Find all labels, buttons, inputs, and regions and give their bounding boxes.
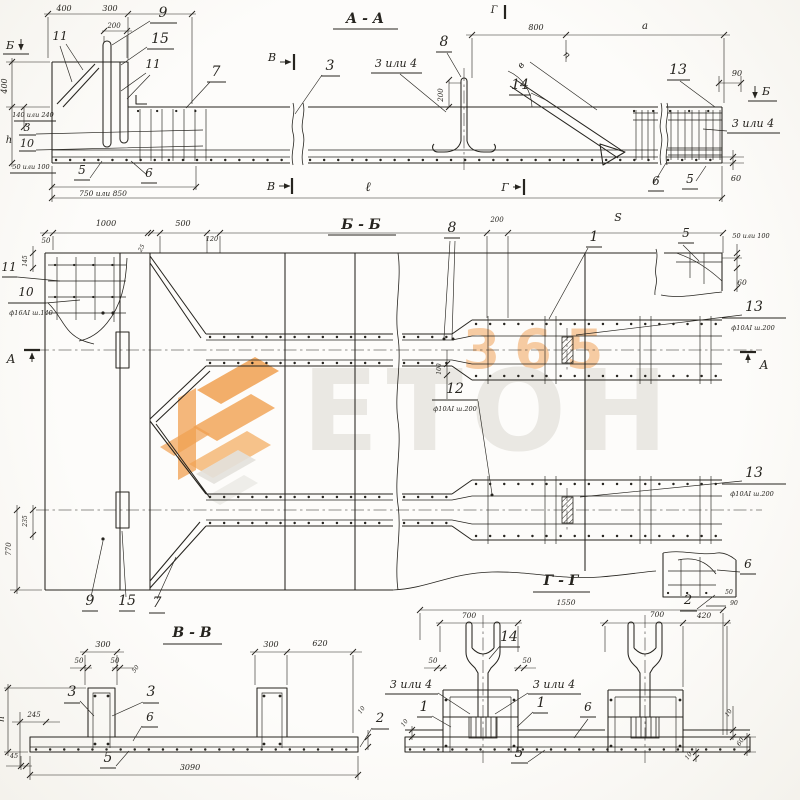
aa-callout-5b: 5 bbox=[686, 172, 694, 186]
gg-callout-1-left: 1 bbox=[420, 699, 429, 715]
aa-dim-a: а bbox=[642, 21, 648, 32]
gg-callout-3or4-left: 3 или 4 bbox=[390, 678, 432, 691]
aa-dim-140-240: 140 или 240 bbox=[12, 111, 53, 119]
gg-dim-700-left: 700 bbox=[462, 611, 477, 620]
gg-dim-10-left: 10 bbox=[400, 718, 410, 728]
section-vv-geometry bbox=[4, 644, 389, 780]
aa-dim-300-top: 300 bbox=[102, 4, 117, 13]
bb-dim-235: 235 bbox=[22, 515, 29, 528]
vv-dim-45: 45 bbox=[9, 752, 18, 760]
bb-dim-200: 200 bbox=[489, 216, 504, 224]
vv-dim-h: h bbox=[0, 716, 7, 722]
aa-dim-800: 800 bbox=[528, 23, 543, 32]
vv-dim-50-rot: 50 bbox=[131, 664, 141, 674]
bb-callout-13-bot: 13 bbox=[745, 465, 763, 481]
bb-dim-50-corner: 50 bbox=[725, 589, 733, 596]
bb-spec-13-top: ф10АI ш.200 bbox=[731, 324, 775, 332]
bb-dim-50-100: 50 или 100 bbox=[732, 232, 769, 240]
aa-callout-11b: 11 bbox=[145, 57, 160, 71]
bb-callout-7: 7 bbox=[153, 595, 162, 611]
bb-mark-a-right: А bbox=[758, 358, 768, 372]
section-bb-geometry bbox=[2, 230, 786, 750]
gg-dim-50-right: 50 bbox=[523, 657, 532, 665]
gg-callout-3or4-right: 3 или 4 bbox=[533, 678, 575, 691]
bb-mark-a-left: А bbox=[5, 352, 15, 366]
bb-dim-1000: 1000 bbox=[96, 219, 116, 228]
gg-title: Г - Г bbox=[543, 573, 580, 589]
bb-callout-11: 11 bbox=[1, 260, 16, 274]
vv-dim-300-right: 300 bbox=[263, 640, 278, 649]
aa-title: А - А bbox=[345, 11, 384, 27]
gg-callout-14: 14 bbox=[500, 629, 518, 645]
bb-dim-90-corner: 90 bbox=[730, 600, 738, 607]
gg-dim-50-left: 50 bbox=[429, 657, 438, 665]
bb-title: Б - Б bbox=[340, 217, 381, 233]
aa-callout-3a: 3 bbox=[24, 121, 31, 134]
bb-callout-1: 1 bbox=[590, 229, 599, 245]
aa-dim-length: ℓ bbox=[365, 180, 371, 195]
gg-dim-10-right: 10 bbox=[724, 708, 734, 718]
gg-dim-700-right: 700 bbox=[650, 610, 665, 619]
bb-spec-13-bot: ф10АI ш.200 bbox=[730, 490, 774, 498]
aa-callout-14: 14 bbox=[511, 77, 529, 93]
vv-callout-2: 2 bbox=[375, 711, 384, 726]
aa-callout-3or4a: 3 или 4 bbox=[375, 57, 417, 70]
blueprint-canvas: 365 ЕТОН bbox=[0, 0, 800, 800]
bb-dim-50: 50 bbox=[42, 237, 51, 245]
bb-callout-5: 5 bbox=[682, 226, 690, 240]
bb-callout-6: 6 bbox=[744, 557, 752, 571]
vv-dim-10: 10 bbox=[357, 705, 367, 715]
aa-mark-b-left: Б bbox=[5, 39, 14, 52]
bb-spec-f16: ф16АI ш.140 bbox=[9, 309, 53, 317]
vv-callout-5: 5 bbox=[104, 750, 113, 766]
vv-callout-6: 6 bbox=[146, 710, 154, 724]
aa-callout-6b: 6 bbox=[652, 174, 660, 188]
aa-dim-h: h bbox=[6, 135, 12, 146]
bb-dim-500: 500 bbox=[175, 219, 190, 228]
aa-callout-3or4b: 3 или 4 bbox=[732, 117, 774, 130]
aa-dim-400-top: 400 bbox=[55, 4, 71, 13]
aa-dim-n: п bbox=[561, 50, 572, 61]
bb-dim-120: 120 bbox=[206, 235, 218, 243]
section-aa-geometry bbox=[3, 5, 780, 202]
aa-dim-v-angle: в bbox=[516, 60, 527, 70]
gg-dim-60: 60 bbox=[735, 736, 746, 747]
bb-dim-S: S bbox=[614, 211, 622, 224]
vv-dim-50-right: 50 bbox=[111, 657, 120, 665]
aa-mark-g-bot: Г bbox=[500, 181, 509, 194]
aa-dim-50-100: 50 или 100 bbox=[12, 163, 49, 171]
aa-callout-8: 8 bbox=[440, 34, 449, 50]
vv-callout-3-left: 3 bbox=[68, 684, 77, 700]
bb-callout-13-top: 13 bbox=[745, 299, 763, 315]
aa-callout-10: 10 bbox=[20, 137, 34, 150]
vv-dim-50-left: 50 bbox=[75, 657, 84, 665]
aa-callout-11a: 11 bbox=[52, 29, 67, 43]
gg-dim-420: 420 bbox=[696, 611, 712, 620]
aa-callout-6a: 6 bbox=[145, 166, 153, 180]
bb-dim-100: 100 bbox=[436, 363, 443, 375]
aa-callout-13: 13 bbox=[669, 62, 687, 78]
gg-callout-5: 5 bbox=[515, 745, 524, 761]
aa-dim-400-left: 400 bbox=[0, 78, 9, 94]
vv-dim-300-left: 300 bbox=[95, 640, 110, 649]
aa-callout-7: 7 bbox=[212, 64, 221, 80]
aa-dim-200-mid: 200 bbox=[437, 88, 445, 103]
aa-dim-90: 90 bbox=[732, 69, 742, 78]
aa-dim-200-top: 200 bbox=[106, 22, 121, 30]
watermark: 365 ЕТОН bbox=[160, 318, 676, 505]
aa-callout-3b: 3 bbox=[326, 58, 335, 74]
bb-callout-2: 2 bbox=[683, 593, 692, 608]
gg-callout-1-right: 1 bbox=[537, 695, 546, 711]
aa-callout-15: 15 bbox=[151, 31, 169, 47]
bb-spec-12: ф10АI ш.200 bbox=[433, 405, 477, 413]
bb-callout-15: 15 bbox=[118, 593, 136, 609]
bb-callout-10: 10 bbox=[18, 285, 34, 299]
gg-dim-1550: 1550 bbox=[556, 598, 575, 607]
bb-callout-9: 9 bbox=[86, 593, 95, 609]
bb-callout-8: 8 bbox=[448, 220, 457, 236]
vv-title: В - В bbox=[171, 625, 211, 641]
watermark-cube-logo bbox=[160, 357, 279, 505]
bb-callout-12: 12 bbox=[446, 381, 464, 397]
blueprint-sheet: 365 ЕТОН bbox=[0, 0, 800, 800]
aa-mark-v-top: В bbox=[267, 51, 276, 64]
vv-callout-3-right: 3 bbox=[147, 684, 156, 700]
bb-dim-60: 60 bbox=[737, 278, 747, 287]
vv-dim-245: 245 bbox=[26, 711, 41, 719]
aa-callout-5a: 5 bbox=[78, 163, 86, 177]
aa-mark-b-right: Б bbox=[761, 85, 770, 98]
bb-dim-145: 145 bbox=[22, 255, 29, 267]
bb-dim-770: 770 bbox=[5, 542, 13, 556]
aa-dim-60: 60 bbox=[731, 174, 741, 183]
aa-mark-g-top: Г bbox=[490, 5, 498, 16]
vv-dim-3090: 3090 bbox=[180, 763, 200, 772]
vv-dim-620: 620 bbox=[312, 639, 327, 648]
aa-dim-750-850: 750 или 850 bbox=[79, 189, 127, 198]
aa-mark-v-bot: В bbox=[266, 180, 275, 193]
gg-callout-6: 6 bbox=[584, 700, 592, 714]
aa-callout-9: 9 bbox=[159, 5, 168, 21]
aa-right-mesh bbox=[633, 110, 722, 160]
